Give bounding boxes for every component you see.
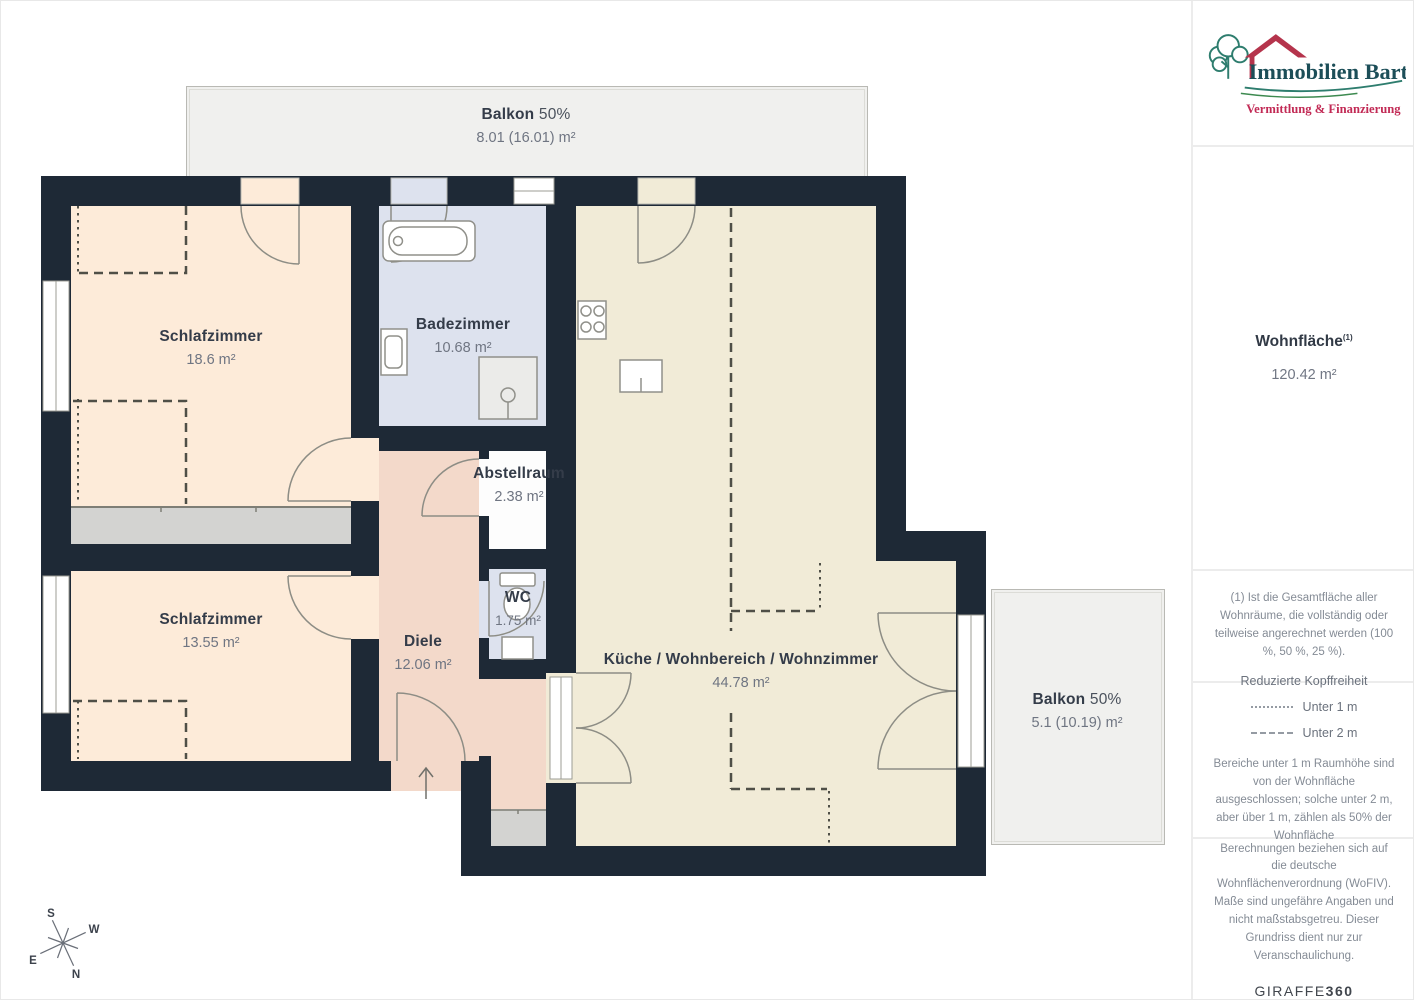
compass-west: W [89,924,100,936]
room-area: 8.01 (16.01) m² [476,128,575,149]
room-area: 13.55 m² [159,633,262,654]
room-area: 2.38 m² [473,487,565,508]
agency-name: Immobilien Bart [1249,59,1406,84]
door-swings [241,206,956,783]
footnote-section: (1) Ist die Gesamtfläche aller Wohnräume… [1193,571,1414,683]
room-name: Diele [394,631,451,653]
room-name: Balkon [481,106,534,123]
legend-item-label: Unter 2 m [1303,726,1358,740]
room-label-abstellraum: Abstellraum 2.38 m² [473,463,565,508]
floorplan-page: S W E N Balkon 50% 8.01 (16.01) m² Schla… [0,0,1414,1000]
floorplan-linework: S W E N [1,1,1191,1000]
bathtub-icon [383,221,475,261]
disclaimer-section: Berechnungen beziehen sich auf die deuts… [1193,839,1414,1000]
room-name: Balkon [1032,691,1085,708]
room-share: 50% [539,106,571,123]
room-area: 5.1 (10.19) m² [1031,713,1122,734]
floorplan: S W E N Balkon 50% 8.01 (16.01) m² Schla… [1,1,1191,1000]
legend-title: Reduzierte Kopffreiheit [1241,674,1368,688]
legend-item-label: Unter 1 m [1303,700,1358,714]
brand-name: GIRAFFE [1254,983,1325,999]
living-area-label-text: Wohnfläche [1255,333,1343,350]
agency-tagline: Vermittlung & Finanzierung [1246,102,1401,116]
bath-sink-icon [381,329,407,375]
shower-icon [479,357,537,419]
room-label-schlafzimmer-1: Schlafzimmer 18.6 m² [159,326,262,371]
giraffe360-logo: GIRAFFE360 [1254,983,1353,999]
room-area: 18.6 m² [159,350,262,371]
room-label-kueche-wohnzimmer: Küche / Wohnbereich / Wohnzimmer 44.78 m… [604,649,879,694]
reduced-height-under-2m-lines [73,206,827,789]
dashed-line-icon [1251,732,1293,734]
compass-north: N [72,969,80,981]
room-label-diele: Diele 12.06 m² [394,631,451,676]
room-name: Badezimmer [416,314,510,336]
info-sidebar: Immobilien Bart Vermittlung & Finanzieru… [1191,1,1414,1000]
wardrobe-lines [71,507,546,814]
kitchen-sink-icon [620,360,662,392]
brand-suffix: 360 [1326,983,1354,999]
room-name: Schlafzimmer [159,609,262,631]
room-label-balkon-right: Balkon 50% 5.1 (10.19) m² [1031,689,1122,734]
wc-sink-icon [502,637,533,659]
legend-item-under-1m: Unter 1 m [1251,700,1358,714]
agency-logo-graphic: Immobilien Bart Vermittlung & Finanzieru… [1202,21,1406,125]
disclaimer-text: Berechnungen beziehen sich auf die deuts… [1193,841,1414,966]
room-area: 1.75 m² [495,611,541,631]
stove-icon [578,301,606,339]
room-label-balkon-top: Balkon 50% 8.01 (16.01) m² [476,104,575,149]
room-name: Schlafzimmer [159,326,262,348]
room-share: 50% [1090,691,1122,708]
reduced-height-under-1m-lines [78,206,829,844]
legend-item-under-2m: Unter 2 m [1251,726,1358,740]
room-area: 10.68 m² [416,338,510,359]
room-area: 44.78 m² [604,673,879,694]
wall-opening-fills [241,178,695,791]
legend-note: Bereiche unter 1 m Raumhöhe sind von der… [1193,756,1414,845]
room-area: 12.06 m² [394,655,451,676]
footnote-marker: (1) [1343,333,1353,342]
headroom-legend: Reduzierte Kopffreiheit Unter 1 m Unter … [1193,683,1414,839]
compass-south: S [47,908,55,920]
compass-rose-icon: S W E N [29,908,99,981]
tree-icon [1210,35,1248,79]
room-name: Küche / Wohnbereich / Wohnzimmer [604,649,879,671]
living-area-label: Wohnfläche(1) [1255,333,1352,351]
compass-east: E [29,955,37,967]
dotted-line-icon [1251,706,1293,708]
living-area-value: 120.42 m² [1271,367,1336,383]
room-label-schlafzimmer-2: Schlafzimmer 13.55 m² [159,609,262,654]
agency-logo: Immobilien Bart Vermittlung & Finanzieru… [1193,1,1414,147]
footnote-text: (1) Ist die Gesamtfläche aller Wohnräume… [1193,590,1414,661]
room-label-badezimmer: Badezimmer 10.68 m² [416,314,510,359]
living-area-summary: Wohnfläche(1) 120.42 m² [1193,147,1414,571]
room-name: Abstellraum [473,463,565,485]
room-name: WC [495,587,541,609]
room-label-wc: WC 1.75 m² [495,587,541,631]
